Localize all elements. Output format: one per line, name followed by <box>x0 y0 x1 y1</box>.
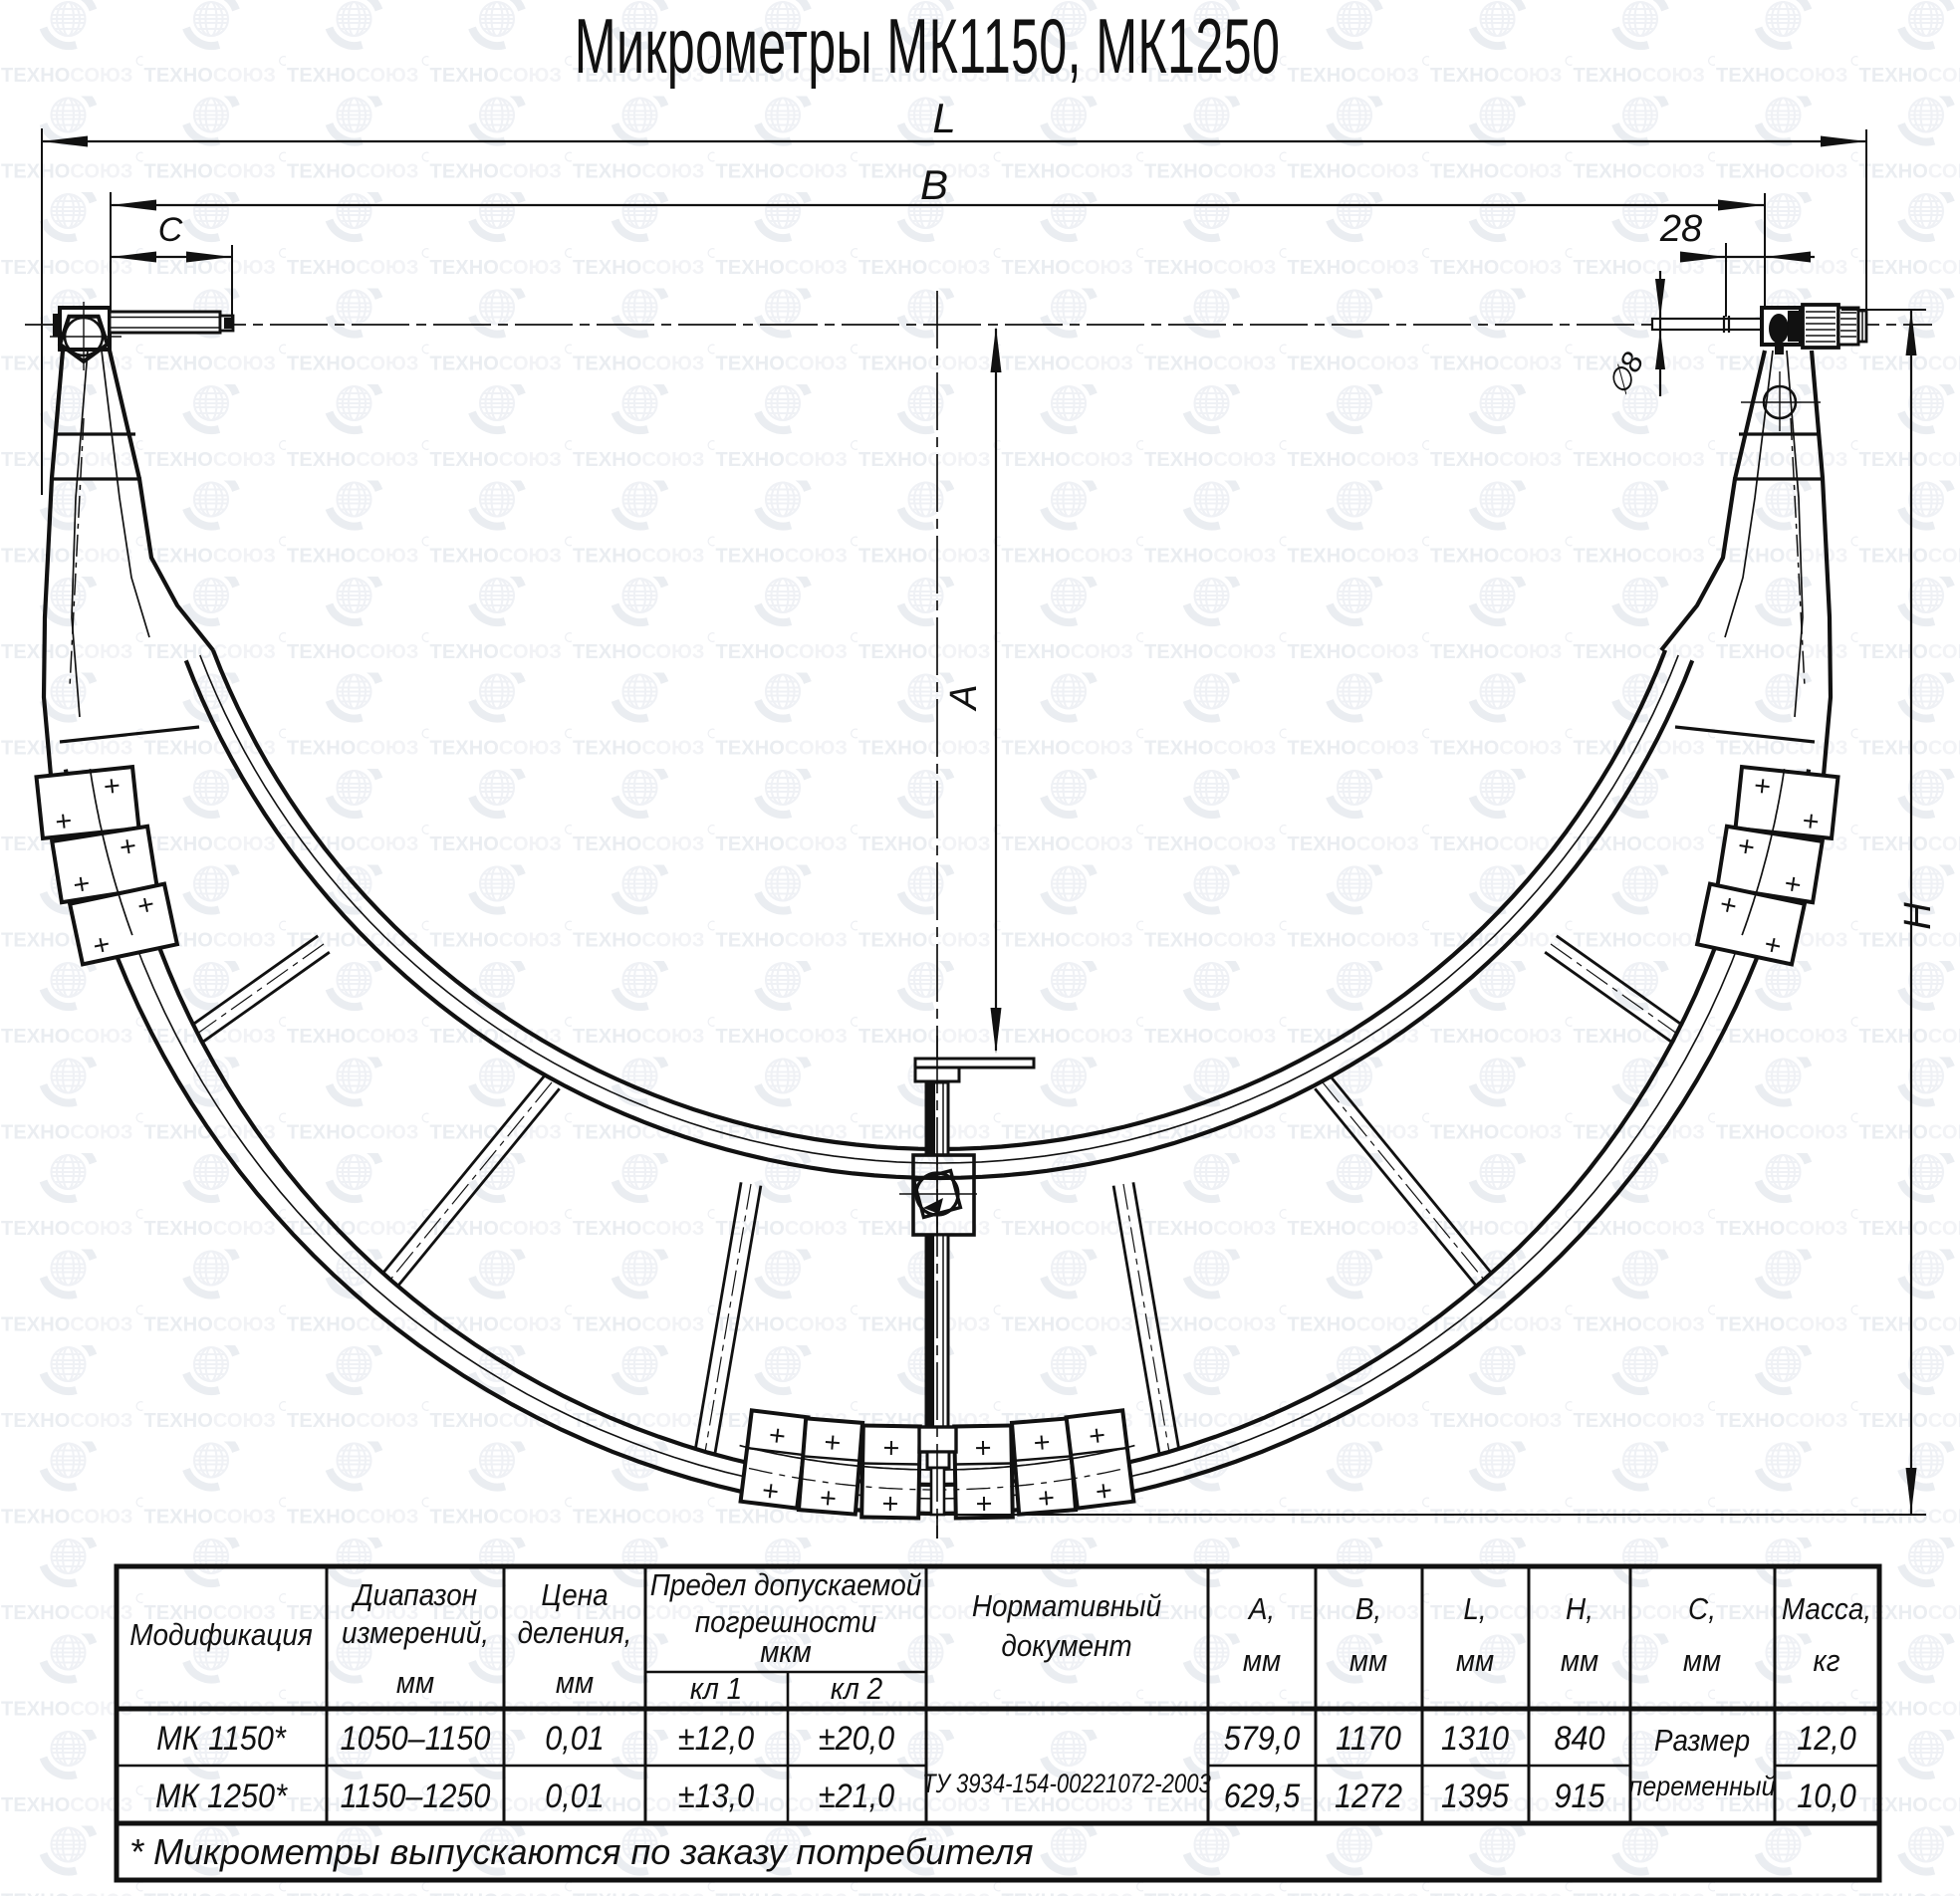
svg-text:МК 1150*: МК 1150* <box>156 1720 287 1758</box>
svg-text:* Микрометры выпускаются по з: * Микрометры выпускаются по заказу потре… <box>129 1831 1034 1872</box>
svg-text:579,0: 579,0 <box>1224 1720 1301 1758</box>
svg-text:документ: документ <box>1001 1629 1131 1664</box>
svg-text:кг: кг <box>1814 1644 1840 1679</box>
svg-text:±13,0: ±13,0 <box>678 1777 754 1815</box>
svg-text:1050–1150: 1050–1150 <box>341 1720 491 1758</box>
svg-text:1150–1250: 1150–1250 <box>341 1777 491 1815</box>
svg-text:Модификация: Модификация <box>129 1618 313 1653</box>
svg-text:измерений,: измерений, <box>342 1616 489 1651</box>
svg-text:±12,0: ±12,0 <box>678 1720 754 1758</box>
svg-text:L: L <box>932 95 955 141</box>
svg-text:Нормативный: Нормативный <box>972 1589 1161 1624</box>
svg-text:кл 2: кл 2 <box>831 1672 882 1707</box>
svg-text:МК 1250*: МК 1250* <box>155 1777 288 1815</box>
svg-text:переменный: переменный <box>1628 1771 1775 1802</box>
svg-text:L,: L, <box>1463 1592 1486 1627</box>
svg-text:В: В <box>920 161 948 208</box>
svg-text:1395: 1395 <box>1441 1777 1510 1815</box>
svg-text:Масса,: Масса, <box>1782 1592 1871 1627</box>
svg-text:Диапазон: Диапазон <box>351 1578 477 1613</box>
svg-text:мм: мм <box>556 1666 594 1701</box>
svg-text:мм: мм <box>1561 1644 1598 1679</box>
svg-text:ТУ 3934-154-00221072-2003: ТУ 3934-154-00221072-2003 <box>922 1770 1211 1799</box>
svg-text:Н: Н <box>1897 902 1939 930</box>
svg-text:мм: мм <box>396 1666 434 1701</box>
svg-text:мм: мм <box>1456 1644 1494 1679</box>
svg-text:Микрометры МК1150, МК1250: Микрометры МК1150, МК1250 <box>575 3 1281 90</box>
svg-text:915: 915 <box>1554 1777 1605 1815</box>
svg-text:629,5: 629,5 <box>1224 1777 1302 1815</box>
svg-text:840: 840 <box>1554 1720 1604 1758</box>
svg-text:С: С <box>158 211 183 249</box>
svg-text:Цена: Цена <box>541 1578 608 1613</box>
svg-text:10,0: 10,0 <box>1797 1777 1856 1815</box>
svg-text:мм: мм <box>1349 1644 1387 1679</box>
svg-text:±20,0: ±20,0 <box>819 1720 894 1758</box>
svg-text:0,01: 0,01 <box>545 1777 605 1815</box>
svg-text:А: А <box>943 684 985 711</box>
svg-text:Н,: Н, <box>1566 1592 1593 1627</box>
svg-text:±21,0: ±21,0 <box>819 1777 894 1815</box>
svg-text:С,: С, <box>1688 1592 1716 1627</box>
svg-text:мм: мм <box>1683 1644 1721 1679</box>
svg-text:В,: В, <box>1355 1592 1381 1627</box>
svg-text:1272: 1272 <box>1335 1777 1402 1815</box>
svg-text:0,01: 0,01 <box>545 1720 605 1758</box>
svg-text:28: 28 <box>1659 208 1702 250</box>
svg-text:12,0: 12,0 <box>1797 1720 1856 1758</box>
svg-text:1170: 1170 <box>1336 1720 1401 1758</box>
svg-text:деления,: деления, <box>518 1616 632 1651</box>
svg-text:мм: мм <box>1243 1644 1281 1679</box>
svg-text:Размер: Размер <box>1654 1724 1750 1759</box>
svg-text:мкм: мкм <box>760 1635 811 1670</box>
svg-text:Предел допускаемой: Предел допускаемой <box>650 1568 922 1603</box>
svg-text:1310: 1310 <box>1441 1720 1509 1758</box>
svg-text:кл 1: кл 1 <box>690 1672 742 1707</box>
svg-text:А,: А, <box>1247 1592 1275 1627</box>
